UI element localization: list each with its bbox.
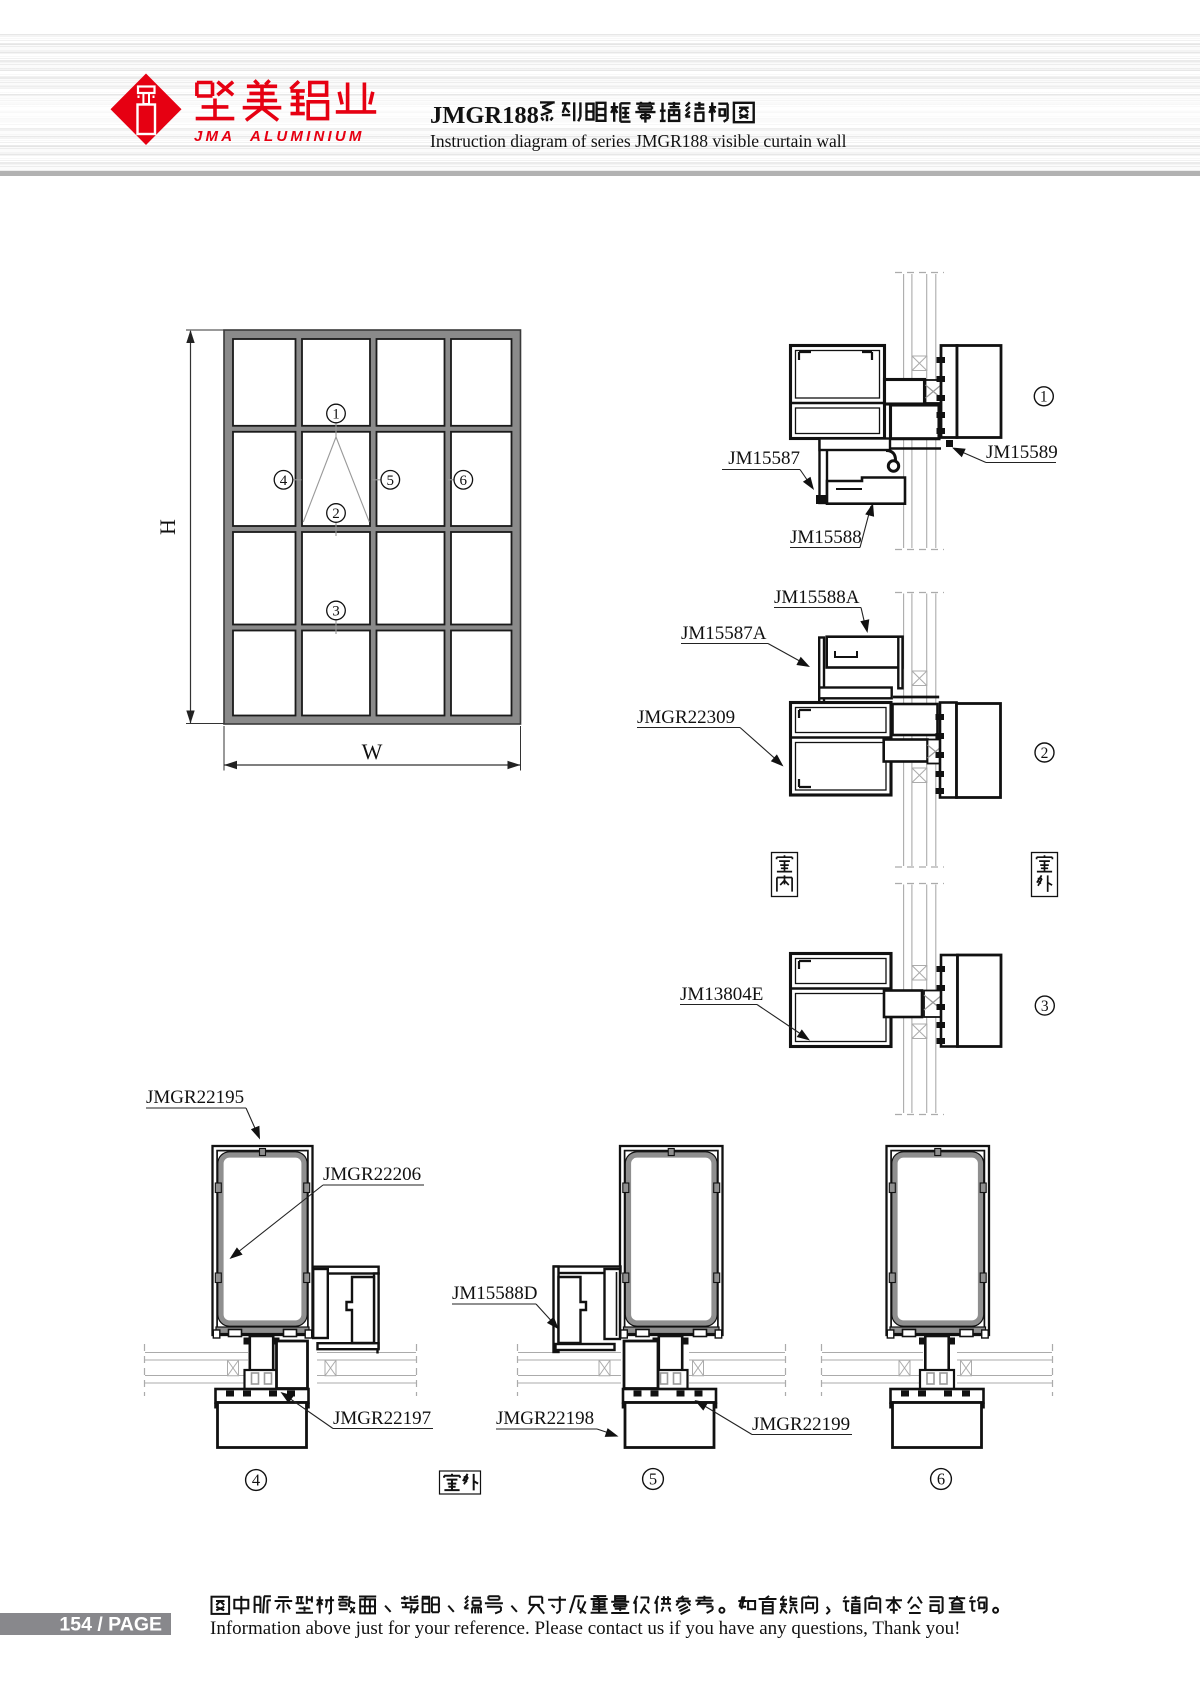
svg-text:Information above just for you: Information above just for your referenc…: [210, 1618, 960, 1639]
svg-text:JM15589: JM15589: [986, 442, 1058, 463]
svg-text:JMGR22309: JMGR22309: [637, 707, 735, 728]
svg-text:JMGR22198: JMGR22198: [496, 1408, 594, 1429]
svg-text:5: 5: [649, 1470, 657, 1489]
svg-text:2: 2: [332, 506, 340, 522]
svg-text:JM15588: JM15588: [790, 527, 862, 548]
svg-text:1: 1: [332, 407, 340, 423]
svg-text:6: 6: [937, 1470, 945, 1489]
svg-text:JMGR22197: JMGR22197: [333, 1408, 431, 1429]
svg-text:JM13804E: JM13804E: [680, 984, 763, 1005]
svg-text:W: W: [362, 739, 383, 764]
svg-text:JM15588A: JM15588A: [774, 587, 860, 608]
svg-text:3: 3: [1041, 998, 1049, 1015]
svg-text:JM15588D: JM15588D: [452, 1283, 538, 1304]
svg-text:JMGR22206: JMGR22206: [323, 1164, 421, 1185]
svg-text:JMGR188: JMGR188: [430, 102, 539, 129]
svg-text:4: 4: [252, 1471, 260, 1490]
svg-text:2: 2: [1041, 745, 1049, 762]
svg-text:JMGR22199: JMGR22199: [752, 1414, 850, 1435]
svg-text:1: 1: [1040, 389, 1048, 406]
svg-text:3: 3: [332, 604, 340, 620]
svg-text:JM15587A: JM15587A: [681, 623, 767, 644]
svg-text:JMGR22195: JMGR22195: [146, 1087, 244, 1108]
svg-text:JM15587: JM15587: [728, 448, 800, 469]
svg-text:H: H: [155, 519, 180, 535]
svg-text:5: 5: [387, 473, 395, 489]
svg-text:6: 6: [460, 473, 468, 489]
svg-text:4: 4: [280, 473, 288, 489]
svg-text:Instruction diagram of series: Instruction diagram of series JMGR188 vi…: [430, 131, 847, 151]
